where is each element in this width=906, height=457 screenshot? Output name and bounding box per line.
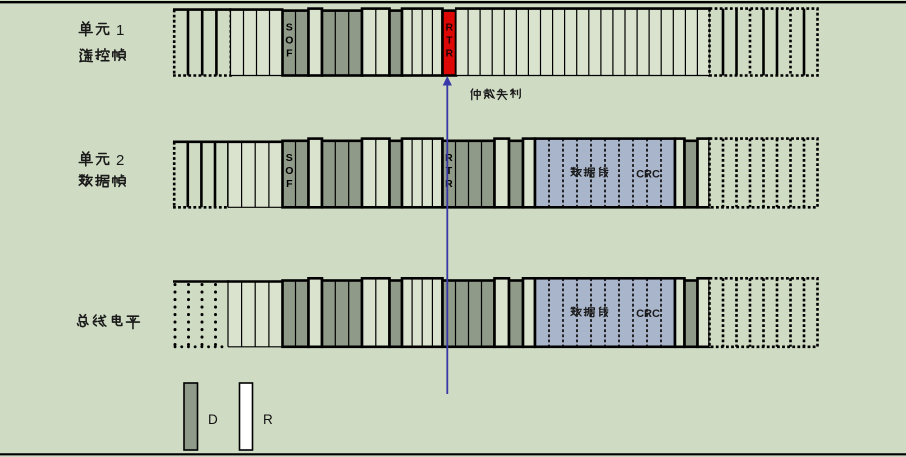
svg-text:R: R [446,48,454,60]
svg-text:O: O [285,165,293,177]
svg-text:F: F [286,178,293,190]
svg-text:1: 1 [116,22,124,39]
svg-text:R: R [445,178,453,190]
svg-text:O: O [285,35,293,47]
svg-text:CRC: CRC [636,168,660,180]
svg-text:R: R [263,412,273,427]
svg-text:2: 2 [116,152,124,169]
svg-text:S: S [286,22,293,34]
svg-text:S: S [286,152,293,164]
svg-text:R: R [445,152,453,164]
svg-text:F: F [286,48,293,60]
svg-text:T: T [446,35,453,47]
svg-text:CRC: CRC [636,308,660,320]
svg-text:D: D [208,412,218,427]
svg-text:R: R [446,22,454,34]
